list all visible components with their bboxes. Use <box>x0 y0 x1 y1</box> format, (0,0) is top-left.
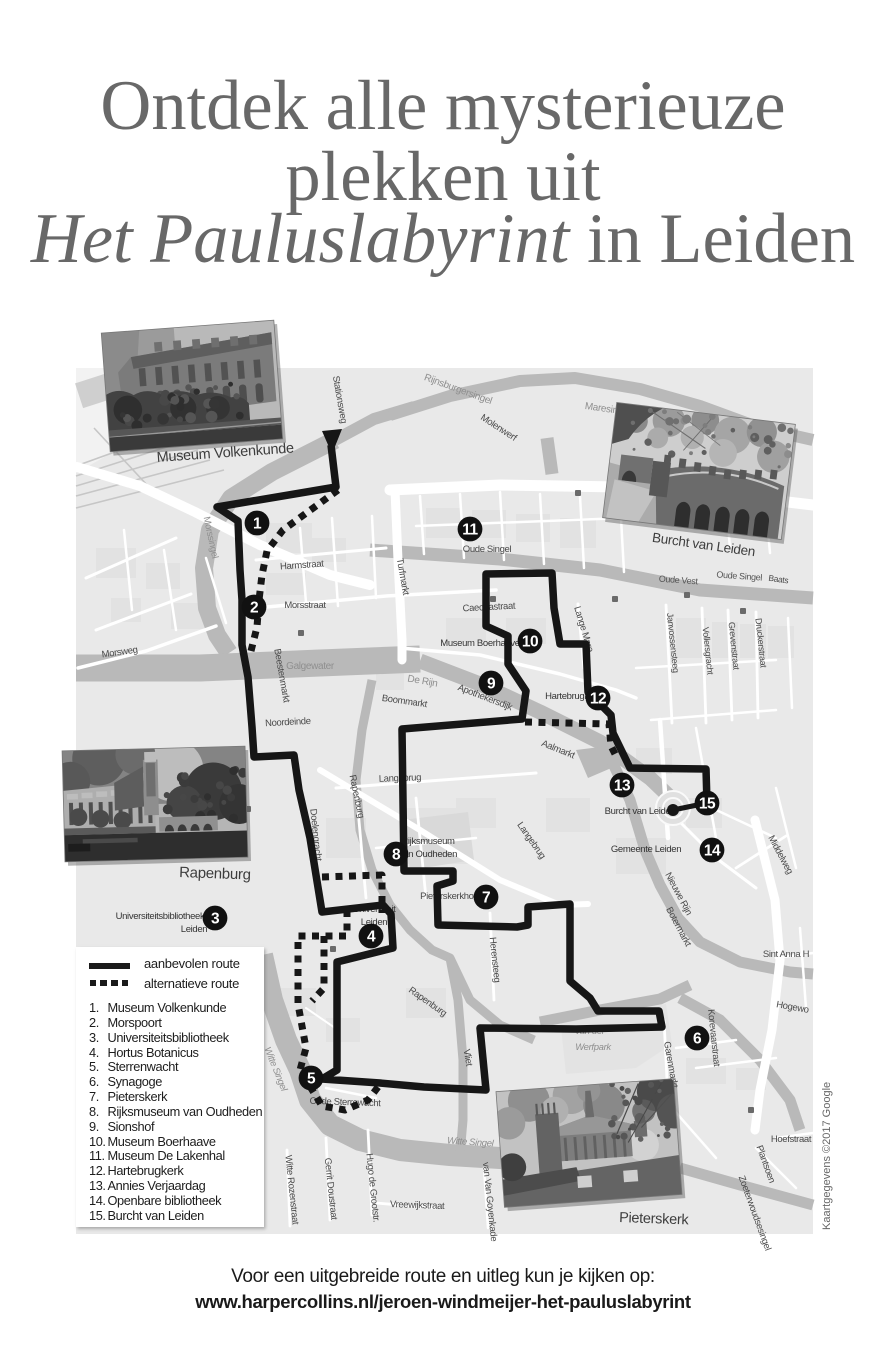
svg-text:Leiden: Leiden <box>181 924 207 935</box>
svg-text:2: 2 <box>250 600 258 617</box>
svg-text:Pieterskerk: Pieterskerk <box>619 1210 690 1228</box>
svg-text:11: 11 <box>462 522 478 539</box>
svg-text:Rapenburg: Rapenburg <box>179 864 251 883</box>
svg-text:13: 13 <box>614 778 631 795</box>
svg-text:Vreewijkstraat: Vreewijkstraat <box>390 1199 445 1212</box>
svg-text:Werfpark: Werfpark <box>575 1042 612 1053</box>
svg-text:Morsstraat: Morsstraat <box>284 600 326 611</box>
svg-text:3: 3 <box>211 911 220 928</box>
svg-text:Pieterskerkhof: Pieterskerkhof <box>420 891 477 902</box>
svg-text:Burcht van Leiden: Burcht van Leiden <box>605 806 676 817</box>
svg-text:Universiteitsbibliotheek: Universiteitsbibliotheek <box>116 911 205 922</box>
svg-text:5: 5 <box>307 1071 316 1088</box>
svg-text:Rijksmuseum: Rijksmuseum <box>401 836 455 847</box>
svg-text:Hoefstraat: Hoefstraat <box>771 1134 812 1145</box>
svg-text:Galgewater: Galgewater <box>286 661 335 672</box>
svg-text:6: 6 <box>693 1031 702 1048</box>
svg-text:Gemeente Leiden: Gemeente Leiden <box>611 844 681 855</box>
svg-text:9: 9 <box>487 676 496 693</box>
svg-text:8: 8 <box>392 847 401 864</box>
svg-text:15: 15 <box>699 796 716 813</box>
svg-text:7: 7 <box>482 890 490 907</box>
svg-text:12: 12 <box>590 691 606 708</box>
svg-text:10: 10 <box>522 634 538 651</box>
svg-text:Oude Singel: Oude Singel <box>463 544 512 555</box>
svg-text:1: 1 <box>253 516 262 533</box>
svg-text:Sint Anna H: Sint Anna H <box>763 949 810 960</box>
svg-text:14: 14 <box>704 843 721 860</box>
svg-text:4: 4 <box>367 929 376 946</box>
